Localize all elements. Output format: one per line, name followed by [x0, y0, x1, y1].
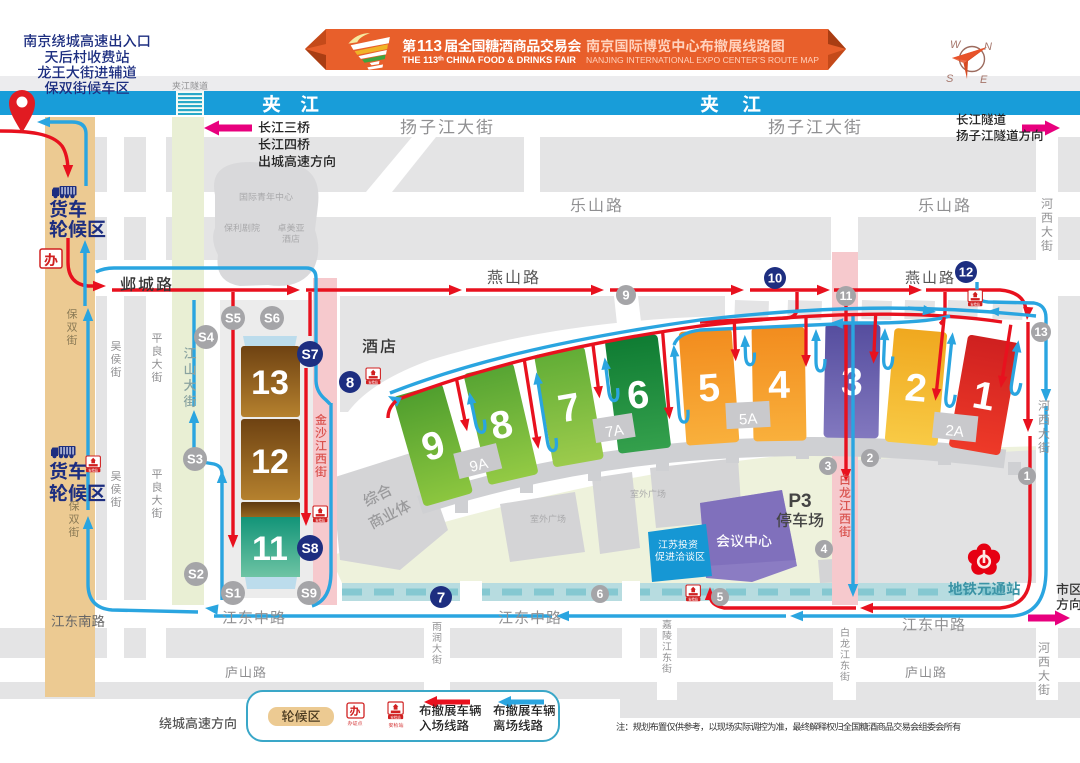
svg-text:13: 13 [1034, 325, 1048, 339]
svg-text:S1: S1 [225, 586, 241, 601]
svg-text:S5: S5 [225, 311, 241, 326]
svg-text:5A: 5A [739, 411, 758, 429]
svg-text:3: 3 [825, 459, 832, 473]
svg-text:6: 6 [597, 587, 604, 601]
svg-text:安检站: 安检站 [88, 467, 98, 472]
svg-text:THE 113ᵗʰ CHINA FOOD & DRINKS: THE 113ᵗʰ CHINA FOOD & DRINKS FAIR [402, 55, 576, 65]
svg-text:8: 8 [346, 374, 354, 391]
svg-text:N: N [984, 41, 992, 53]
svg-text:安检站: 安检站 [368, 379, 378, 384]
svg-text:7: 7 [437, 589, 445, 606]
svg-text:2A: 2A [945, 422, 965, 441]
svg-text:12: 12 [959, 265, 973, 280]
svg-text:安检站: 安检站 [315, 517, 325, 522]
svg-text:10: 10 [768, 271, 782, 286]
svg-text:113: 113 [417, 38, 442, 55]
svg-text:1: 1 [1024, 469, 1031, 483]
svg-text:S3: S3 [187, 452, 203, 467]
svg-text:4: 4 [821, 542, 828, 556]
svg-text:P3: P3 [788, 491, 811, 512]
svg-text:E: E [980, 74, 988, 86]
svg-text:S4: S4 [198, 330, 215, 345]
svg-text:13: 13 [251, 364, 289, 402]
svg-text:11: 11 [252, 530, 288, 568]
svg-text:安检站: 安检站 [970, 301, 980, 306]
svg-text:S6: S6 [264, 311, 280, 326]
svg-text:5: 5 [697, 366, 722, 410]
svg-text:S2: S2 [188, 567, 204, 582]
svg-text:4: 4 [768, 364, 791, 407]
svg-text:S7: S7 [301, 346, 318, 362]
svg-text:9: 9 [622, 288, 629, 303]
svg-text:安检站: 安检站 [390, 714, 401, 719]
svg-text:S: S [946, 73, 954, 85]
svg-text:S8: S8 [301, 540, 318, 556]
svg-text:安检站: 安检站 [688, 596, 698, 601]
svg-text:NANJING INTERNATIONAL EXPO CEN: NANJING INTERNATIONAL EXPO CENTER’S ROUT… [586, 55, 819, 65]
svg-text:5: 5 [717, 590, 724, 604]
svg-text:11: 11 [840, 289, 853, 303]
svg-text:12: 12 [251, 443, 289, 481]
svg-text:2: 2 [867, 451, 874, 465]
svg-text:7A: 7A [604, 422, 625, 442]
svg-text:S9: S9 [301, 586, 317, 601]
svg-text:2: 2 [903, 366, 928, 411]
svg-text:W: W [950, 39, 962, 51]
